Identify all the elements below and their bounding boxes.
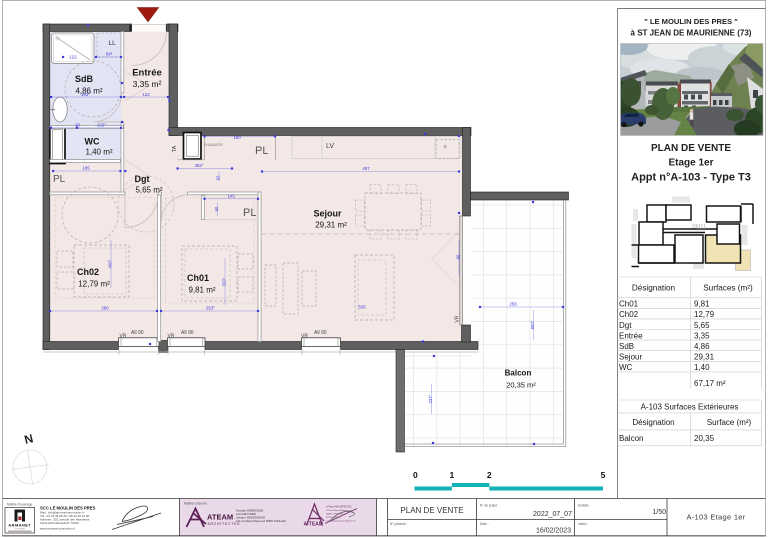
svg-text:Désignation: Désignation — [632, 284, 676, 293]
svg-text:403°: 403° — [194, 163, 203, 168]
svg-text:12,79 m²: 12,79 m² — [78, 280, 110, 289]
svg-text:Sejour: Sejour — [313, 209, 342, 219]
svg-text:185: 185 — [82, 166, 90, 171]
svg-text:3,35 m²: 3,35 m² — [133, 79, 162, 89]
svg-text:20,35 m²: 20,35 m² — [506, 381, 536, 390]
svg-text:ARMANET: ARMANET — [8, 523, 31, 528]
svg-text:CHAUDIERE: CHAUDIERE — [204, 143, 223, 147]
svg-text:Surfaces (m²): Surfaces (m²) — [703, 284, 753, 293]
svg-text:800°: 800° — [530, 320, 535, 329]
svg-text:LYONNAIS: LYONNAIS — [15, 528, 26, 531]
svg-text:64²: 64² — [106, 52, 113, 57]
svg-text:VR: VR — [168, 334, 175, 340]
svg-text:Balcon: Balcon — [619, 434, 643, 443]
svg-text:92: 92 — [216, 175, 221, 180]
svg-text:253°: 253° — [206, 306, 215, 311]
svg-text:VR: VR — [301, 334, 308, 340]
svg-text:4,86: 4,86 — [694, 342, 710, 351]
svg-text:LV: LV — [326, 143, 334, 150]
svg-text:A-103 Surfaces Extérieures: A-103 Surfaces Extérieures — [641, 402, 739, 411]
svg-text:A-103 Etage 1er: A-103 Etage 1er — [686, 513, 745, 522]
svg-text:90: 90 — [456, 254, 461, 259]
svg-text:258: 258 — [509, 302, 517, 307]
svg-text:Johann SEVESSAND: Johann SEVESSAND — [236, 516, 266, 520]
svg-text:60: 60 — [214, 206, 219, 211]
svg-text:2: 2 — [487, 470, 492, 480]
svg-text:3,35: 3,35 — [694, 331, 710, 340]
svg-text:CHALLES-LES-EAUX 73190: CHALLES-LES-EAUX 73190 — [40, 521, 79, 525]
svg-text:All 90: All 90 — [131, 330, 144, 336]
svg-text:Ch02: Ch02 — [77, 267, 99, 277]
svg-text:1,40: 1,40 — [694, 363, 710, 372]
svg-text:20,35: 20,35 — [694, 434, 715, 443]
svg-text:PLAN DE VENTE: PLAN DE VENTE — [651, 143, 731, 154]
svg-text:320°: 320° — [222, 277, 227, 286]
svg-text:Appt n°A-103 - Type T3: Appt n°A-103 - Type T3 — [631, 172, 751, 184]
svg-text:ATEAM: ATEAM — [207, 513, 233, 522]
svg-text:20: 20 — [75, 123, 80, 128]
svg-text:All 90: All 90 — [314, 330, 327, 336]
svg-text:VR: VR — [455, 315, 461, 322]
svg-text:29,31: 29,31 — [694, 353, 715, 362]
svg-text:38560 CHOLLES: 38560 CHOLLES — [326, 514, 343, 516]
svg-text:497: 497 — [362, 166, 370, 171]
svg-text:190: 190 — [233, 135, 241, 140]
svg-text:Surface (m²): Surface (m²) — [707, 418, 752, 427]
svg-text:1: 1 — [450, 470, 455, 480]
svg-text:67,17 m²: 67,17 m² — [694, 379, 726, 388]
svg-text:PL: PL — [243, 207, 256, 219]
svg-text:145: 145 — [227, 194, 235, 199]
svg-text:PL: PL — [255, 145, 268, 157]
svg-text:Entrée: Entrée — [132, 68, 162, 79]
svg-text:www.armanet-promotion.fr: www.armanet-promotion.fr — [40, 527, 75, 531]
svg-text:PL: PL — [53, 174, 66, 185]
svg-text:Désignation: Désignation — [632, 418, 674, 427]
svg-text:Balcon: Balcon — [505, 369, 532, 378]
svg-text:1/50: 1/50 — [652, 509, 666, 516]
svg-text:122: 122 — [69, 54, 77, 59]
svg-text:122: 122 — [142, 92, 150, 97]
svg-text:12,79: 12,79 — [694, 310, 715, 319]
svg-text:9,81 m²: 9,81 m² — [188, 286, 215, 295]
svg-text:4,86 m²: 4,86 m² — [75, 87, 102, 96]
svg-text:All 90: All 90 — [181, 330, 194, 336]
svg-text:535: 535 — [358, 305, 366, 310]
svg-text:Indice :: Indice : — [578, 522, 588, 526]
svg-text:SdB: SdB — [619, 342, 634, 351]
svg-text:N: N — [23, 431, 35, 447]
svg-text:5,65 m²: 5,65 m² — [135, 186, 162, 195]
svg-text:Date :: Date : — [480, 522, 489, 526]
svg-text:SdB: SdB — [75, 74, 94, 84]
svg-text:400°: 400° — [108, 259, 113, 268]
svg-text:290: 290 — [101, 306, 109, 311]
svg-text:5,65: 5,65 — [694, 321, 710, 330]
svg-text:Echelle :: Echelle : — [578, 504, 590, 508]
svg-text:Dgt: Dgt — [619, 321, 632, 330]
svg-text:Entrée: Entrée — [619, 331, 643, 340]
svg-text:" LE MOULIN DES PRES ": " LE MOULIN DES PRES " — [644, 17, 738, 26]
svg-text:1,40 m²: 1,40 m² — [85, 148, 112, 157]
svg-text:LL: LL — [109, 40, 117, 47]
svg-text:TA: TA — [172, 145, 178, 152]
svg-text:Dgt: Dgt — [135, 174, 150, 184]
svg-text:N° planche :: N° planche : — [390, 522, 408, 526]
svg-text:A-TEAM: A-TEAM — [304, 522, 323, 528]
svg-text:Etage 1er: Etage 1er — [668, 158, 713, 169]
svg-text:132°: 132° — [97, 123, 106, 128]
svg-text:0: 0 — [413, 470, 418, 480]
svg-text:123 rue Marcel Raymond 38560 C: 123 rue Marcel Raymond 38560 CHOLLES — [236, 519, 286, 523]
svg-text:Ch01: Ch01 — [187, 273, 209, 283]
svg-text:PLAN DE VENTE: PLAN DE VENTE — [400, 506, 463, 515]
svg-text:Ch02: Ch02 — [619, 310, 639, 319]
svg-text:Maître d'œuvre :: Maître d'œuvre : — [184, 502, 209, 506]
svg-text:237°: 237° — [428, 394, 433, 403]
svg-text:N° de projet :: N° de projet : — [480, 504, 499, 508]
svg-text:WC: WC — [85, 137, 100, 147]
svg-text:Ch01: Ch01 — [619, 300, 639, 309]
svg-text:A-Team ARCHITECTES: A-Team ARCHITECTES — [326, 506, 352, 509]
svg-text:VR: VR — [120, 334, 127, 340]
svg-text:WC: WC — [619, 363, 633, 372]
svg-text:9,81: 9,81 — [694, 300, 710, 309]
svg-text:Maître d'ouvrage :: Maître d'ouvrage : — [7, 503, 34, 507]
svg-text:Sejour: Sejour — [619, 353, 642, 362]
svg-text:2022_07_07: 2022_07_07 — [533, 511, 572, 518]
svg-text:16/02/2023: 16/02/2023 — [536, 528, 571, 535]
svg-text:à ST JEAN DE MAURIENNE (73): à ST JEAN DE MAURIENNE (73) — [631, 29, 752, 38]
svg-text:5: 5 — [601, 470, 606, 480]
svg-text:29,31 m²: 29,31 m² — [315, 221, 347, 230]
